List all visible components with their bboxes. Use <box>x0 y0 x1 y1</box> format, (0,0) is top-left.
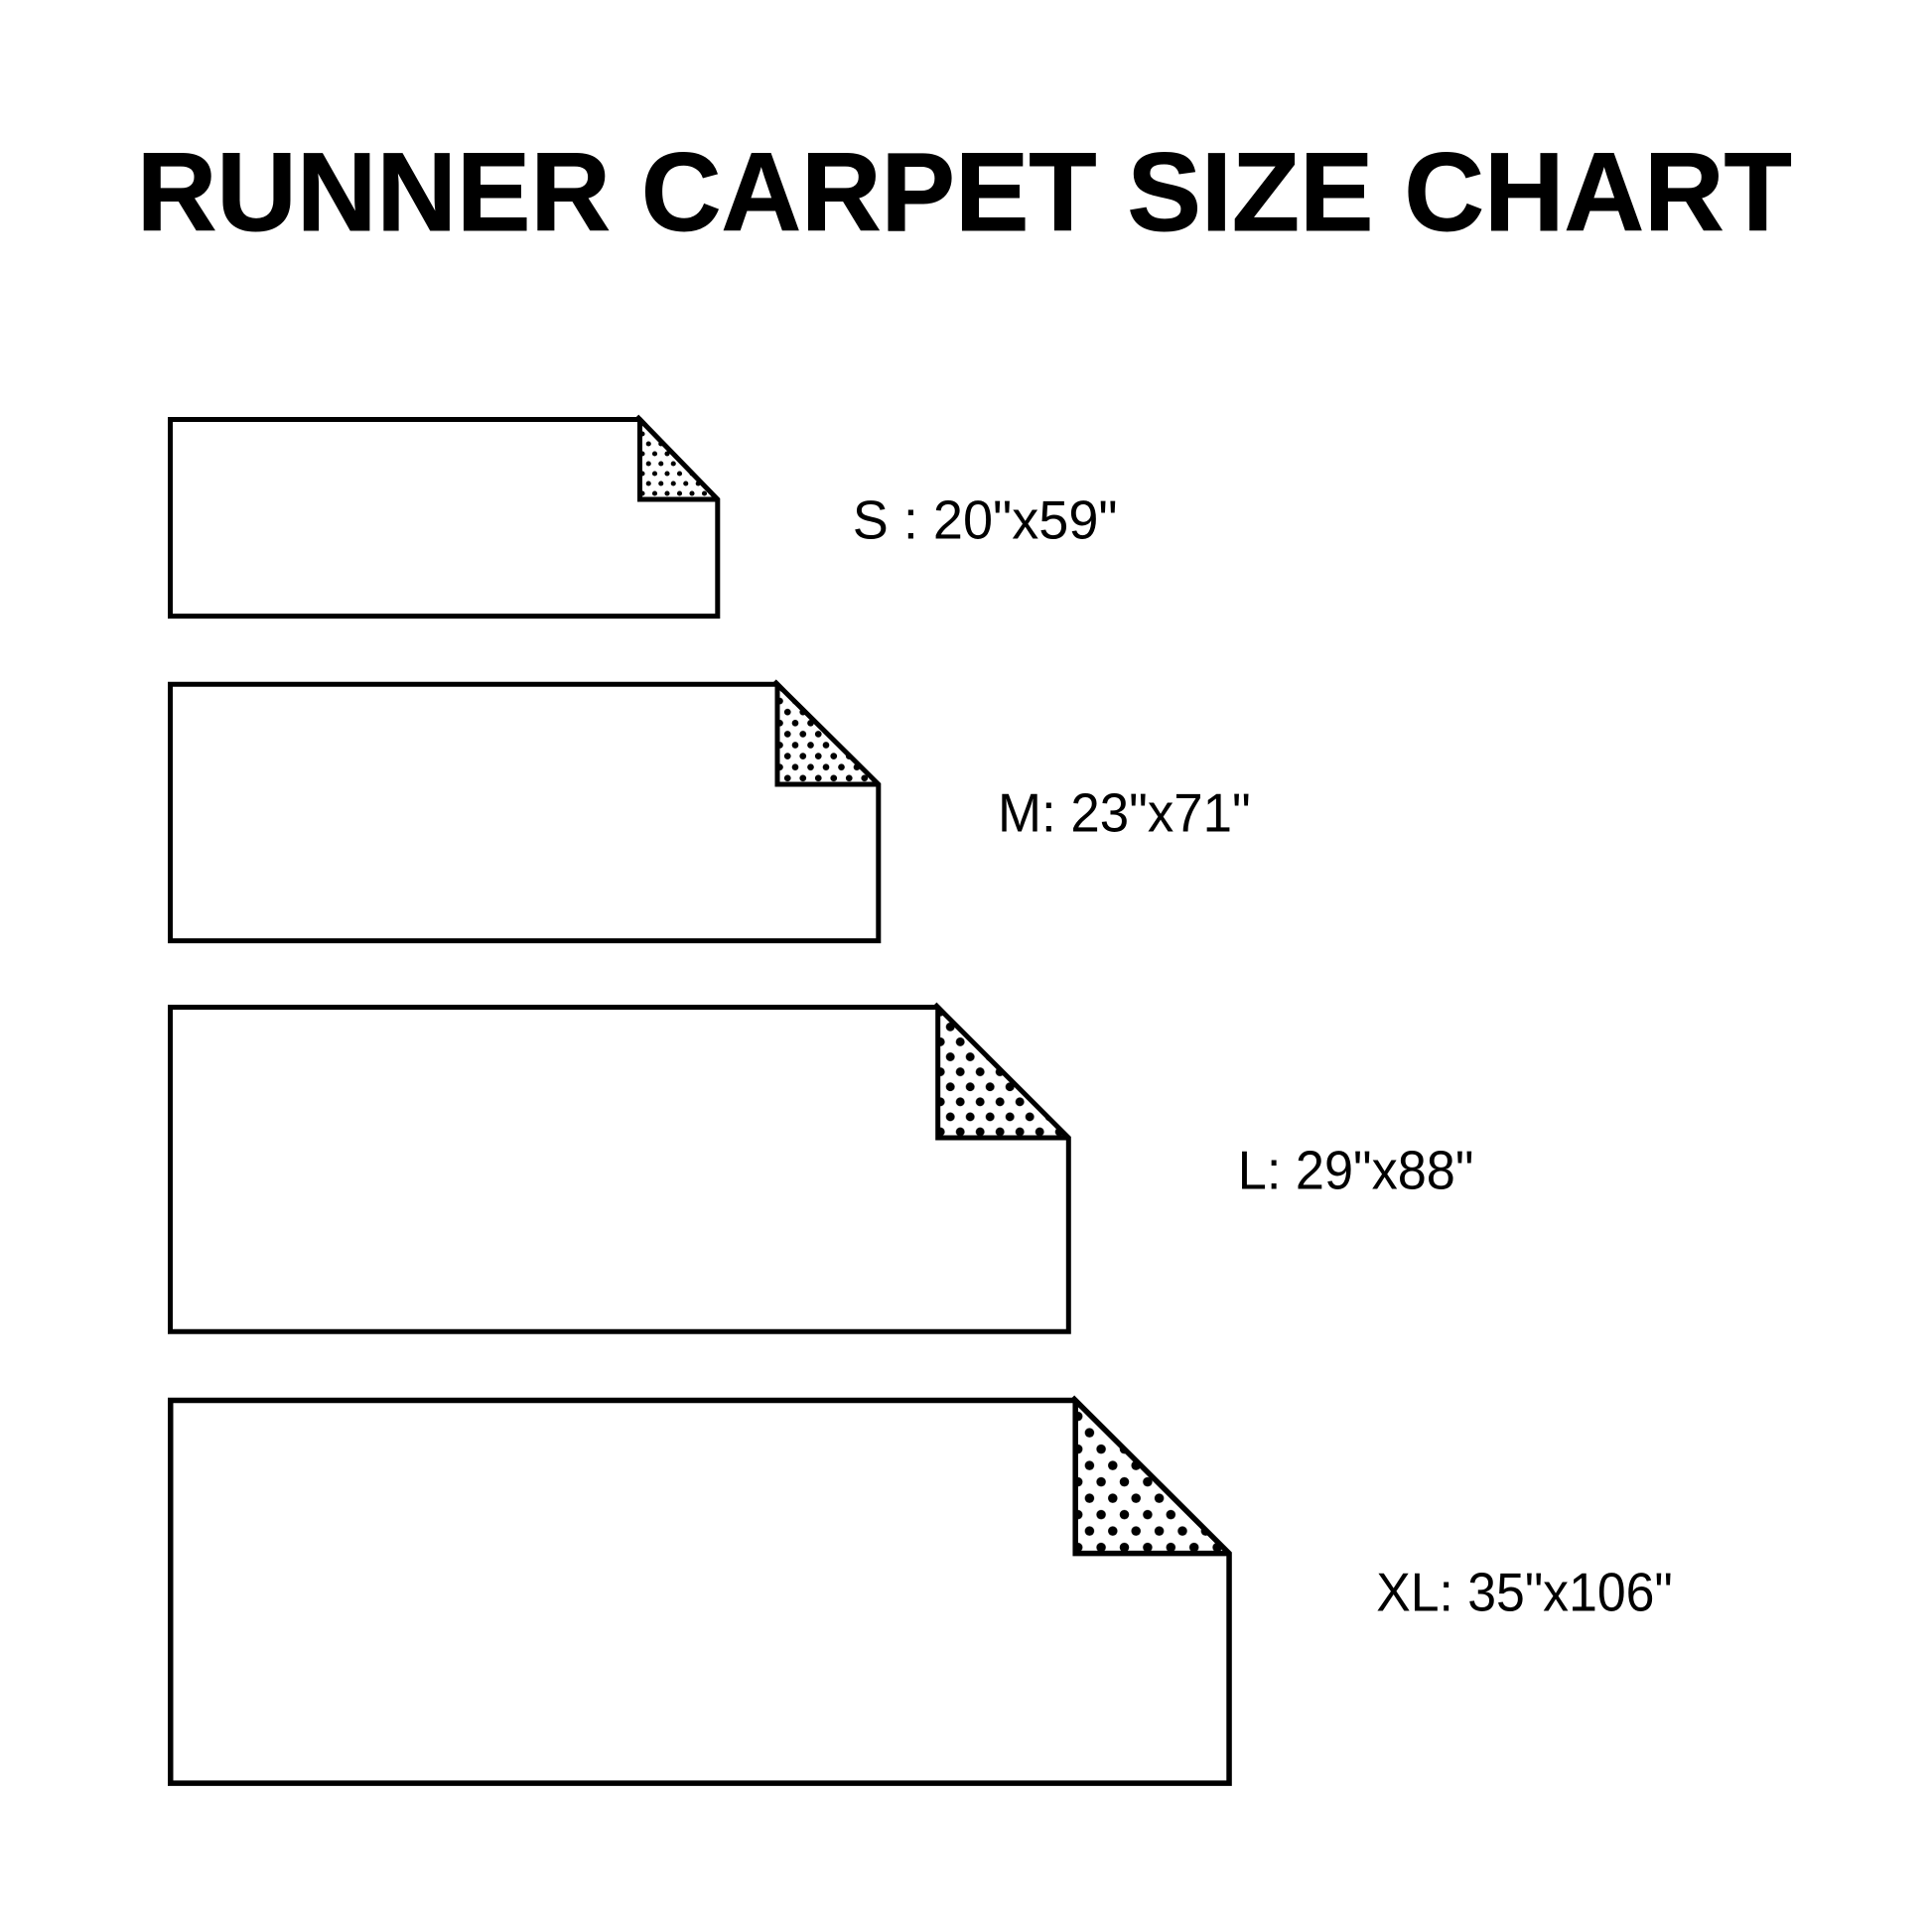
svg-text:RUNNER CARPET SIZE CHART: RUNNER CARPET SIZE CHART <box>137 129 1792 254</box>
svg-text:S : 20"x59": S : 20"x59" <box>853 489 1118 551</box>
svg-text:M: 23"x71": M: 23"x71" <box>998 781 1251 843</box>
svg-text:XL: 35"x106": XL: 35"x106" <box>1376 1561 1673 1622</box>
svg-text:L: 29"x88": L: 29"x88" <box>1238 1139 1474 1200</box>
